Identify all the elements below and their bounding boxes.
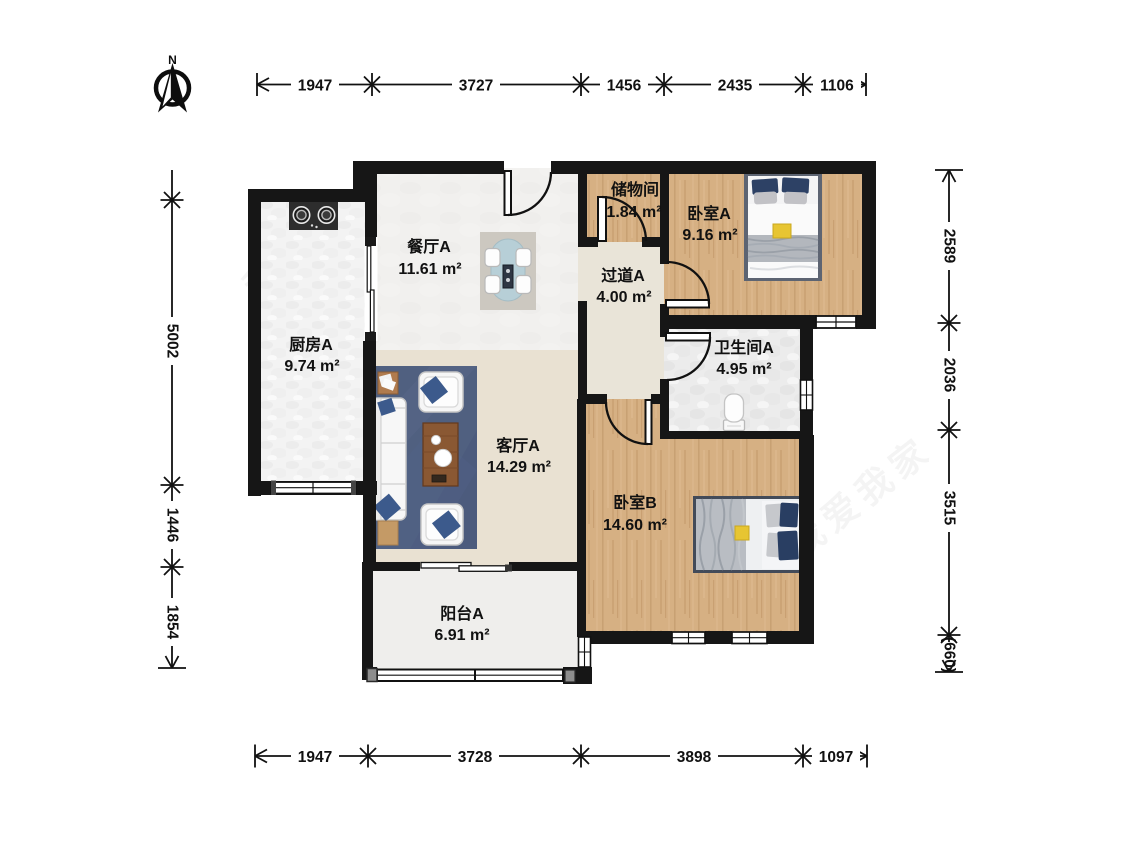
svg-text:1854: 1854 xyxy=(164,605,181,640)
svg-text:卫生间A: 卫生间A xyxy=(714,338,774,357)
svg-text:卧室B: 卧室B xyxy=(613,493,657,512)
svg-text:储物间: 储物间 xyxy=(610,180,659,199)
svg-text:4.00 m²: 4.00 m² xyxy=(596,289,651,306)
svg-text:11.61 m²: 11.61 m² xyxy=(398,261,461,278)
svg-text:14.60 m²: 14.60 m² xyxy=(603,517,667,534)
svg-text:2589: 2589 xyxy=(941,229,958,264)
svg-text:3898: 3898 xyxy=(677,749,712,766)
svg-text:5002: 5002 xyxy=(164,324,181,358)
svg-text:1446: 1446 xyxy=(164,508,181,543)
svg-text:1097: 1097 xyxy=(819,749,853,766)
svg-text:3515: 3515 xyxy=(941,491,958,526)
svg-text:餐厅A: 餐厅A xyxy=(406,237,451,256)
svg-text:阳台A: 阳台A xyxy=(440,604,484,623)
svg-text:1947: 1947 xyxy=(298,78,332,95)
svg-text:(660): (660) xyxy=(941,637,958,673)
svg-text:1106: 1106 xyxy=(820,78,854,95)
svg-text:厨房A: 厨房A xyxy=(289,335,333,354)
svg-text:9.74 m²: 9.74 m² xyxy=(284,358,339,375)
svg-text:3727: 3727 xyxy=(459,78,493,95)
svg-text:2435: 2435 xyxy=(718,78,753,95)
svg-text:3728: 3728 xyxy=(458,749,493,766)
svg-text:N: N xyxy=(168,53,177,67)
svg-text:卧室A: 卧室A xyxy=(687,204,731,223)
svg-text:1.84 m²: 1.84 m² xyxy=(606,204,661,221)
svg-text:14.29 m²: 14.29 m² xyxy=(487,459,551,476)
svg-text:6.91 m²: 6.91 m² xyxy=(434,627,489,644)
svg-text:客厅A: 客厅A xyxy=(496,436,540,455)
svg-text:4.95 m²: 4.95 m² xyxy=(716,361,771,378)
svg-text:1947: 1947 xyxy=(298,749,332,766)
svg-text:1456: 1456 xyxy=(607,78,642,95)
svg-text:2036: 2036 xyxy=(941,358,958,393)
svg-text:过道A: 过道A xyxy=(601,266,645,285)
svg-text:9.16 m²: 9.16 m² xyxy=(682,227,737,244)
